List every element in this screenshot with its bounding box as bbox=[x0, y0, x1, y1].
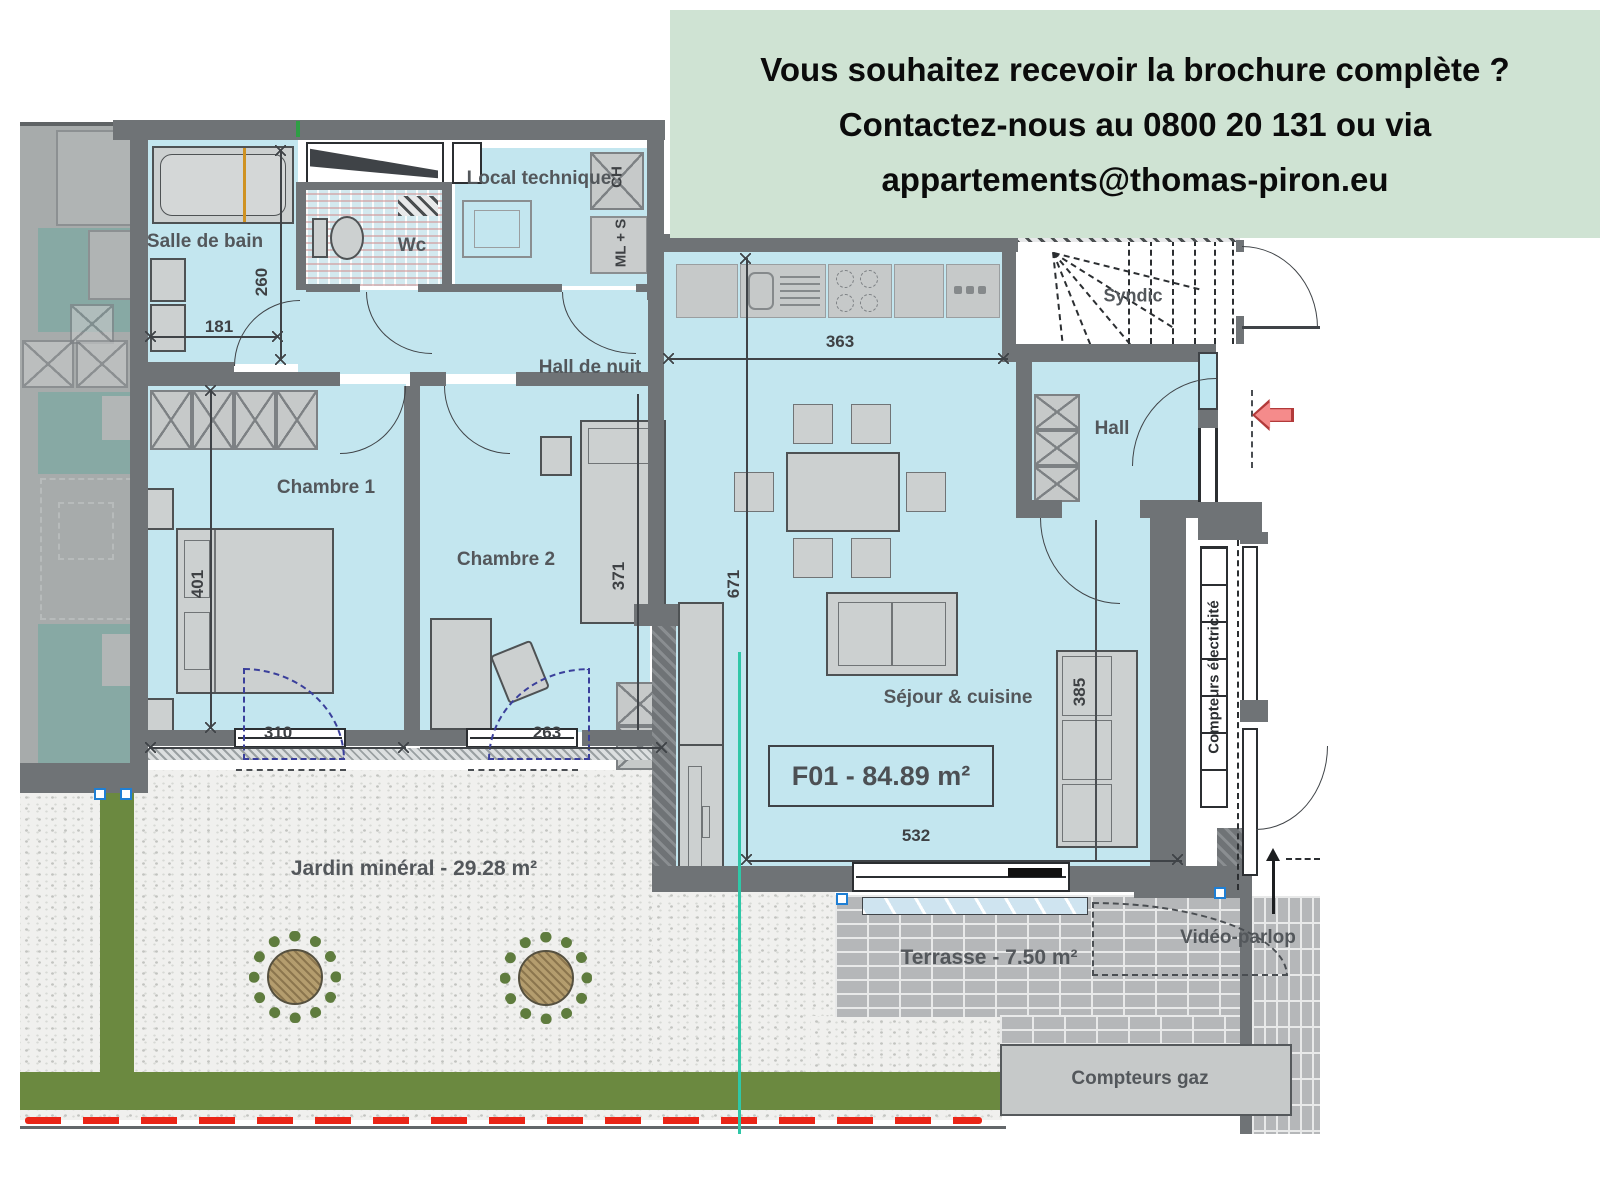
selection-handle bbox=[836, 893, 848, 905]
wall-segment bbox=[404, 386, 420, 742]
equipment-label-video-parlophone: Vidéo-parlop bbox=[1180, 927, 1296, 949]
wardrobe bbox=[150, 390, 192, 450]
sideboard-knob bbox=[702, 806, 710, 838]
dimension-label: 181 bbox=[205, 317, 233, 337]
dimension-label: 363 bbox=[826, 332, 854, 352]
stair-step bbox=[1172, 240, 1174, 344]
bed-headboard-line bbox=[214, 530, 216, 692]
hob-burner-icon bbox=[860, 294, 878, 312]
washbasin bbox=[150, 258, 186, 302]
entrance-arrow-icon-fill bbox=[1255, 402, 1291, 428]
tick-mark bbox=[398, 742, 409, 753]
wardrobe bbox=[192, 390, 234, 450]
dimension-label: 671 bbox=[724, 570, 744, 598]
neighbour-fixture bbox=[102, 396, 132, 440]
kitchen-unit bbox=[894, 264, 944, 318]
equipment-label-compteurs-gaz: Compteurs gaz bbox=[1071, 1068, 1208, 1090]
shelf bbox=[540, 436, 572, 476]
window bbox=[1242, 546, 1258, 716]
wall-segment bbox=[1016, 500, 1062, 518]
up-arrow-icon bbox=[1266, 848, 1280, 861]
neighbour-dresser bbox=[88, 230, 136, 300]
dimension-label: 532 bbox=[902, 826, 930, 846]
plot-line bbox=[20, 1126, 1006, 1129]
glass-balustrade bbox=[862, 897, 1088, 915]
equipment-label-ch: CH bbox=[609, 166, 626, 188]
door-leaf-line bbox=[1095, 520, 1097, 860]
wardrobe bbox=[1034, 466, 1080, 502]
dimension-label: 260 bbox=[252, 268, 272, 296]
marker-teal-line bbox=[738, 652, 741, 1134]
sink-icon bbox=[748, 272, 774, 310]
room-label-hall-de-nuit: Hall de nuit bbox=[539, 357, 641, 379]
dimension-label: 263 bbox=[533, 723, 561, 743]
dimension-label: 371 bbox=[609, 562, 629, 590]
dimension-line bbox=[280, 150, 282, 360]
stair-step bbox=[1232, 240, 1234, 344]
dimension-line bbox=[746, 258, 748, 860]
chair bbox=[734, 472, 774, 512]
banner-line-1: Vous souhaitez recevoir la brochure comp… bbox=[670, 42, 1600, 97]
chair bbox=[906, 472, 946, 512]
wall-segment bbox=[418, 284, 452, 292]
knob-icon bbox=[954, 286, 962, 294]
tick-mark bbox=[1172, 854, 1183, 865]
room-label-syndic: Syndic bbox=[1103, 286, 1162, 307]
plumbing-line bbox=[243, 148, 246, 222]
tick-mark bbox=[740, 253, 751, 264]
neighbour-wardrobe bbox=[22, 340, 74, 388]
room-label-local-technique: Local technique bbox=[467, 168, 612, 190]
tick-mark bbox=[663, 353, 674, 364]
neighbour-bed bbox=[56, 130, 136, 226]
dimension-line bbox=[420, 747, 662, 749]
neighbour-fixture bbox=[102, 634, 132, 686]
wall-segment bbox=[452, 284, 562, 292]
wall-segment bbox=[442, 182, 452, 290]
hob-burner-icon bbox=[836, 270, 854, 288]
stair-step bbox=[1214, 240, 1216, 344]
wall-segment bbox=[648, 290, 664, 606]
wall-segment bbox=[1002, 344, 1216, 362]
knob-icon bbox=[978, 286, 986, 294]
chair bbox=[851, 404, 891, 444]
sill-dashed-line bbox=[236, 769, 346, 771]
wall-segment bbox=[296, 182, 306, 290]
planter bbox=[518, 950, 574, 1006]
room-label-sejour-cuisine: Séjour & cuisine bbox=[884, 687, 1033, 709]
wall-segment bbox=[1140, 500, 1198, 518]
dimension-label: 385 bbox=[1070, 678, 1090, 706]
tick-mark bbox=[145, 331, 156, 342]
room-label-chambre-2: Chambre 2 bbox=[457, 549, 555, 571]
syndic-staircase: Syndic bbox=[1016, 240, 1240, 344]
loveseat-cushion bbox=[838, 602, 892, 666]
selection-handle bbox=[120, 788, 132, 800]
room-label-salle-de-bain: Salle de bain bbox=[147, 231, 263, 253]
outdoor-label-terrasse: Terrasse - 7.50 m² bbox=[900, 946, 1077, 970]
green-band bbox=[20, 1072, 1000, 1110]
wall-segment bbox=[1240, 532, 1268, 544]
neighbour-dashed-zone bbox=[58, 502, 114, 560]
room-label-hall: Hall bbox=[1095, 418, 1130, 440]
jardin-gravel bbox=[652, 890, 835, 1074]
toilet-bowl bbox=[330, 216, 364, 260]
wall-segment bbox=[1134, 866, 1252, 898]
dining-table bbox=[786, 452, 900, 532]
wall-segment bbox=[1150, 506, 1186, 890]
loveseat-cushion bbox=[892, 602, 946, 666]
room-label-wc: Wc bbox=[398, 235, 427, 257]
wall-segment bbox=[634, 604, 678, 626]
tick-mark bbox=[275, 354, 286, 365]
dimension-line bbox=[637, 394, 639, 730]
knob-icon bbox=[966, 286, 974, 294]
chair bbox=[793, 538, 833, 578]
tick-mark bbox=[275, 145, 286, 156]
brochure-banner: Vous souhaitez recevoir la brochure comp… bbox=[670, 10, 1600, 238]
sink-drainer-icon bbox=[780, 276, 820, 306]
wardrobe bbox=[1034, 394, 1080, 430]
selection-handle bbox=[94, 788, 106, 800]
sofa-cushion bbox=[1062, 720, 1112, 780]
wall-segment bbox=[148, 372, 340, 386]
wall-segment bbox=[306, 182, 442, 190]
neighbour-wardrobe bbox=[70, 304, 114, 344]
dimension-label: 401 bbox=[188, 570, 208, 598]
wardrobe bbox=[1034, 430, 1080, 466]
wardrobe bbox=[234, 390, 276, 450]
sill-dashed-line bbox=[468, 769, 578, 771]
wall-segment bbox=[1016, 360, 1032, 502]
chair bbox=[793, 404, 833, 444]
door-swing-arc bbox=[1242, 246, 1318, 328]
neighbour-wardrobe bbox=[76, 340, 128, 388]
selection-handle bbox=[1214, 887, 1226, 899]
dimension-line bbox=[150, 747, 406, 749]
wall-segment bbox=[647, 140, 664, 300]
bathtub-basin bbox=[160, 154, 286, 216]
unit-area-box: F01 - 84.89 m² bbox=[768, 745, 994, 807]
door-handle-icon bbox=[1008, 868, 1062, 877]
dimension-line bbox=[748, 860, 1182, 862]
dimension-line bbox=[210, 390, 212, 728]
wall-segment bbox=[652, 866, 854, 892]
tick-mark bbox=[205, 722, 216, 733]
plot-limit-red-line bbox=[25, 1117, 982, 1124]
entry-dashed-line bbox=[1251, 390, 1253, 468]
water-softener-inner bbox=[474, 210, 520, 248]
dimension-label: 310 bbox=[264, 723, 292, 743]
room-label-chambre-1: Chambre 1 bbox=[277, 477, 375, 499]
equipment-label-ml-s: ML + S bbox=[613, 219, 630, 268]
marker-green-tick bbox=[296, 121, 300, 137]
tick-mark bbox=[145, 742, 156, 753]
dashed-line bbox=[1286, 858, 1320, 860]
tick-mark bbox=[205, 385, 216, 396]
hob-burner-icon bbox=[860, 270, 878, 288]
sideboard bbox=[688, 766, 702, 876]
duct-block bbox=[398, 196, 438, 216]
planter bbox=[267, 949, 323, 1005]
outdoor-label-jardin: Jardin minéral - 29.28 m² bbox=[291, 857, 537, 881]
wardrobe bbox=[276, 390, 318, 450]
sofa-cushion bbox=[1062, 784, 1112, 842]
chair bbox=[851, 538, 891, 578]
wall-segment bbox=[148, 362, 234, 372]
facade-dashed-line bbox=[1237, 540, 1239, 890]
door-swing-arc bbox=[1256, 746, 1328, 830]
washbasin bbox=[150, 304, 186, 352]
tick-mark bbox=[741, 854, 752, 865]
wall-segment bbox=[306, 284, 360, 292]
hob-burner-icon bbox=[836, 294, 854, 312]
kitchen-unit bbox=[676, 264, 738, 318]
toilet-tank bbox=[312, 218, 328, 258]
floorplan-page: Syndic bbox=[0, 0, 1600, 1200]
stair-step bbox=[1194, 240, 1196, 344]
banner-line-3: appartements@thomas-piron.eu bbox=[670, 152, 1600, 207]
door-leaf bbox=[1242, 326, 1320, 329]
dimension-line bbox=[668, 358, 1008, 360]
wall-segment bbox=[652, 626, 676, 888]
pillow bbox=[184, 612, 210, 670]
jardin-gravel bbox=[810, 1016, 1002, 1074]
storage-divider bbox=[680, 744, 722, 746]
wall-segment bbox=[1002, 240, 1016, 344]
tick-mark bbox=[656, 742, 667, 753]
unit-area-label: F01 - 84.89 m² bbox=[792, 761, 971, 792]
wall-segment bbox=[130, 140, 148, 766]
wall-segment bbox=[410, 372, 446, 386]
desk bbox=[430, 618, 492, 730]
tick-mark bbox=[272, 331, 283, 342]
wall-segment bbox=[113, 120, 665, 140]
wall-segment bbox=[1240, 700, 1268, 722]
green-hedge bbox=[100, 793, 134, 1074]
tick-mark bbox=[998, 353, 1009, 364]
equipment-label-compteurs-electricite: Compteurs électricité bbox=[1206, 600, 1223, 753]
banner-line-2: Contactez-nous au 0800 20 131 ou via bbox=[670, 97, 1600, 152]
stair-step bbox=[1054, 252, 1200, 290]
arrow-line bbox=[1272, 860, 1275, 914]
